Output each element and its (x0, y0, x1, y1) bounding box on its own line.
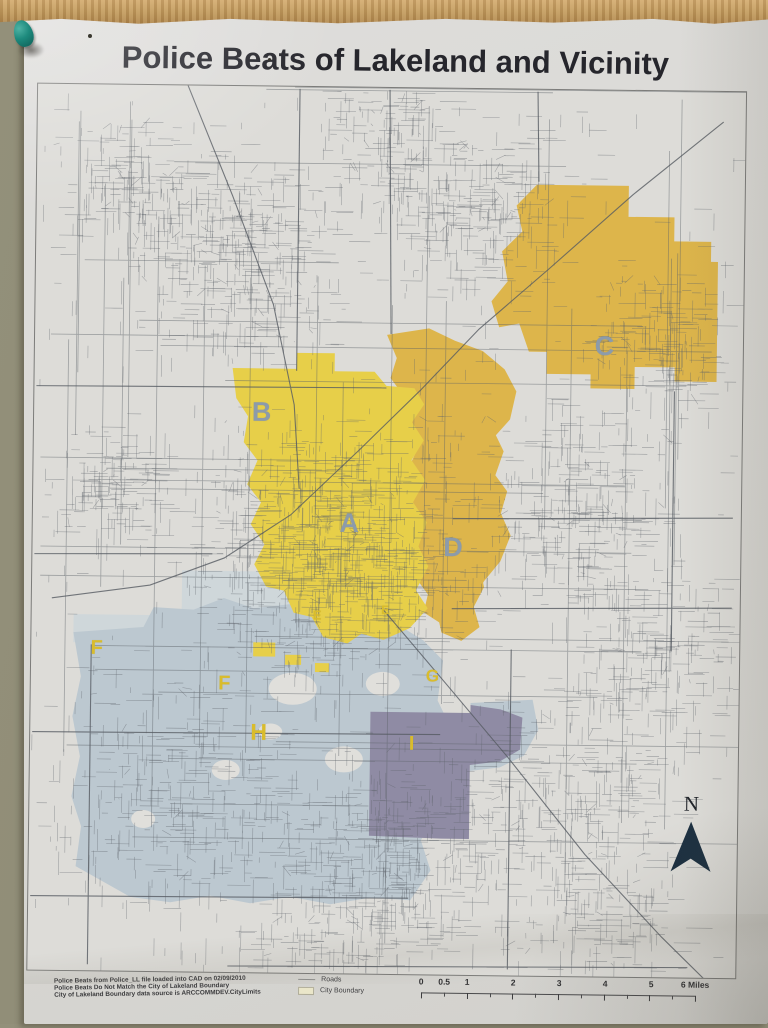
north-arrow-shape (671, 821, 712, 871)
scale-tick-mark (512, 993, 513, 999)
scale-tick-label: 0.5 (438, 977, 450, 987)
scale-tick-label: 5 (649, 979, 654, 989)
beat-label-b: B (252, 397, 273, 428)
beat-label-i: I (409, 733, 416, 756)
page-title: Police Beats of Lakeland and Vicinity (23, 38, 767, 83)
scale-tick-mark (421, 992, 422, 998)
city-boundary-swatch-icon (298, 986, 314, 994)
pushpin (10, 20, 50, 60)
north-label: N (684, 792, 699, 817)
roads-line-icon (298, 979, 315, 980)
legend-roads-label: Roads (321, 976, 341, 983)
beat-label-d: D (443, 532, 464, 563)
beat-label-g: G (426, 666, 440, 686)
beat-label-f: F (90, 637, 103, 660)
scale-tick-mark (558, 994, 559, 1000)
scale-tick-mark (467, 993, 468, 999)
north-arrow-icon (667, 821, 716, 874)
map-legend: Roads City Boundary (298, 974, 364, 997)
scale-tick-mark (489, 993, 490, 997)
map-footnotes: Police Beats from Police_LL file loaded … (54, 975, 261, 999)
scale-tick-mark (672, 995, 673, 999)
beat-label-h: H (250, 719, 268, 746)
poster-paper: Police Beats of Lakeland and Vicinity (24, 13, 768, 1024)
scale-tick-mark (626, 995, 627, 999)
beat-labels-layer: BCADEEFFGHI (27, 84, 746, 979)
scale-tick-mark (535, 994, 536, 998)
speck (268, 58, 271, 61)
beat-label-c: C (595, 331, 616, 362)
speck (88, 34, 92, 38)
scale-tick-mark (695, 996, 696, 1002)
scale-tick-label: 3 (557, 978, 562, 988)
beat-label-a: A (339, 508, 360, 539)
scale-tick-label: 2 (511, 977, 516, 987)
beat-label-e: E (381, 603, 390, 617)
printed-content: Police Beats of Lakeland and Vicinity (12, 8, 768, 1028)
scale-tick-label: 1 (465, 977, 470, 987)
legend-row-roads: Roads (298, 974, 364, 986)
legend-row-city-boundary: City Boundary (298, 985, 364, 997)
scale-tick-label: 0 (419, 976, 424, 986)
scale-tick-label: 4 (603, 979, 608, 989)
beat-label-e: E (313, 608, 323, 623)
scale-tick-mark (604, 995, 605, 1001)
legend-city-boundary-label: City Boundary (320, 987, 364, 995)
scale-tick-mark (649, 995, 650, 1001)
beat-label-f: F (218, 672, 231, 695)
scale-tick-label: 6 Miles (681, 980, 709, 990)
scale-tick-mark (444, 993, 445, 997)
scale-tick-mark (581, 994, 582, 998)
scale-bar: 00.5123456 Miles (421, 976, 703, 1005)
north-indicator: N (660, 791, 721, 894)
map-frame: BCADEEFFGHI N (26, 83, 747, 980)
